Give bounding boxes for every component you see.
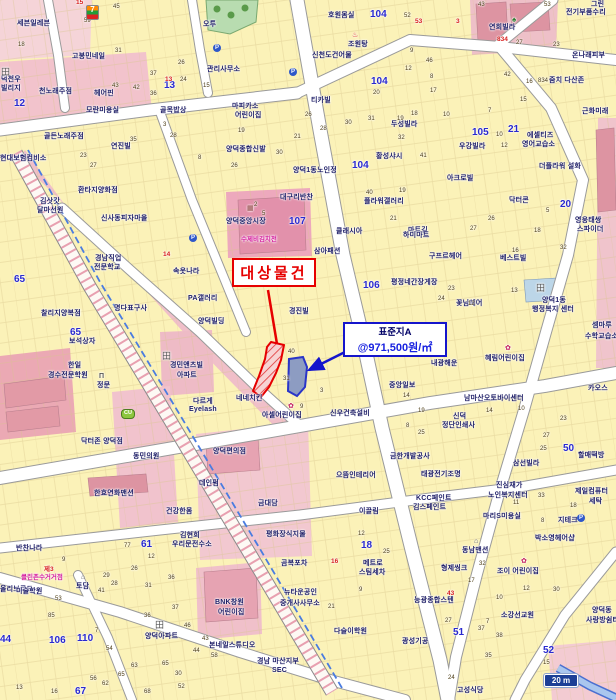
map-label: 속옷나라: [173, 268, 200, 275]
parcel-number: 30: [175, 671, 182, 677]
house-icon: ⌂: [474, 538, 478, 545]
map-label: 중앙일보: [389, 382, 416, 389]
map-label: 우강빌라: [459, 143, 486, 150]
street-name-label: 수제비김치전: [241, 237, 277, 244]
parcel-number: 24: [180, 77, 187, 83]
map-label: 네네치킨: [236, 395, 263, 402]
parcel-number: 30: [276, 150, 283, 156]
parcel-number: 5: [262, 211, 265, 217]
map-label: 정문: [97, 382, 110, 389]
map-label: 진심재가: [496, 482, 523, 489]
parcel-number: 37: [478, 626, 485, 632]
parcel-number: 46: [426, 58, 433, 64]
map-label: 경민앤츠빌: [170, 362, 203, 369]
map-label: 오투: [203, 21, 216, 28]
parcel-number: 36: [150, 91, 157, 97]
map-label: 호원몸실: [328, 12, 355, 19]
map-label: 정단인쇄사: [442, 422, 475, 429]
parcel-number: 38: [496, 633, 503, 639]
kindergarten-icon: ✿: [288, 403, 294, 410]
map-label: 삼아패션: [314, 248, 341, 255]
standard-lot-title: 표준지A: [378, 324, 411, 338]
parcel-number: 37: [172, 605, 179, 611]
map-label: 태광전기조명: [421, 471, 461, 478]
street-name-label: 클린존수거거점: [21, 575, 63, 582]
block-number: 105: [472, 128, 489, 138]
map-label: 내광해운: [431, 360, 458, 367]
parcel-number: 12: [405, 66, 412, 72]
parcel-number: 3: [320, 388, 323, 394]
block-number: 106: [49, 636, 66, 646]
map-label: 카오스: [588, 385, 608, 392]
parcel-number: 12: [523, 586, 530, 592]
parcel-number: 30: [345, 120, 352, 126]
parcel-number: 42: [133, 85, 140, 91]
tree-icon: ♠: [512, 16, 516, 24]
map-label: 건강한몸: [166, 508, 193, 515]
block-number: 107: [289, 217, 306, 227]
map-label: 관리사무소: [207, 66, 240, 73]
parcel-number: 3: [163, 122, 166, 128]
parcel-number: 27: [445, 618, 452, 624]
map-label: 현대보험컴비소: [0, 155, 46, 162]
parcel-number: 27: [90, 163, 97, 169]
parcel-number: 42: [504, 72, 511, 78]
parcel-number: 20: [373, 90, 380, 96]
red-parcel-number: 834: [497, 37, 508, 44]
parcel-number: 31: [283, 376, 290, 382]
map-label: 황성샤시: [376, 153, 403, 160]
parcel-number: 28: [170, 133, 177, 139]
map-label: 경남직업: [95, 255, 122, 262]
parcel-number: 52: [404, 13, 411, 19]
map-label: 양덕빌딩: [198, 318, 225, 325]
parcel-number: 25: [383, 549, 390, 555]
parcel-number: 36: [144, 613, 151, 619]
map-label: 달마선원: [37, 207, 64, 214]
map-label: 플라워갤러리: [364, 198, 404, 205]
map-label: 마피카소: [232, 103, 259, 110]
parcel-number: 8: [198, 155, 201, 161]
parcel-number: 44: [193, 648, 200, 654]
gate-icon: Π: [99, 373, 104, 380]
map-label: 골든노래주점: [44, 133, 84, 140]
block-number: 51: [453, 628, 464, 638]
parcel-number: 10: [496, 595, 503, 601]
map-label: 경수전문학원: [48, 372, 88, 379]
map-label: 행정복지 센터: [532, 306, 574, 313]
map-label: 세븐일레븐: [17, 20, 50, 27]
map-label: 근화미래: [582, 108, 609, 115]
map-label: 소강선교원: [501, 612, 534, 619]
map-label: 전문학교: [94, 264, 121, 271]
parcel-number: 14: [486, 408, 493, 414]
map-viewport: 세븐일레븐오투고봉민네일관리사무소마피카소어린이집천노래주점헤어핀덕천우빌리지모…: [0, 0, 616, 700]
map-label: 제일컴퓨터: [575, 488, 608, 495]
map-label: 보석상자: [69, 338, 96, 345]
map-label: 그린: [591, 1, 604, 8]
market-icon: ▦: [247, 205, 254, 212]
block-number: 67: [75, 687, 86, 697]
parcel-number: 9: [62, 557, 65, 563]
bath-icon: ♨: [352, 32, 358, 39]
block-number: 65: [14, 275, 25, 285]
parking-icon: P: [213, 44, 221, 52]
parcel-number: 46: [184, 623, 191, 629]
block-number: 52: [543, 646, 554, 656]
map-label: 마리S미용실: [483, 513, 521, 520]
map-label: 지테크: [558, 517, 578, 524]
map-label: KCC페인트: [416, 495, 452, 502]
parcel-number: 85: [48, 613, 55, 619]
map-label: 베스트빌: [500, 255, 527, 262]
map-label: 양덕1동노인정: [293, 167, 337, 174]
map-label: 빌리지: [1, 85, 21, 92]
parcel-number: 834: [538, 78, 548, 84]
apartment-icon: 田: [162, 352, 171, 361]
map-label: 양덕1동: [542, 297, 566, 304]
parcel-number: 41: [98, 588, 105, 594]
map-label: 어린이집: [235, 112, 262, 119]
map-label: 아크로빌: [447, 175, 474, 182]
map-label: 신천도건어물: [312, 52, 352, 59]
map-label: 연진빌: [111, 143, 131, 150]
parcel-number: 9: [410, 48, 413, 54]
parcel-number: 41: [420, 153, 427, 159]
parcel-number: 15: [203, 83, 210, 89]
parcel-number: 53: [55, 596, 62, 602]
map-label: 대구리반찬: [280, 194, 313, 201]
parcel-number: 56: [90, 676, 97, 682]
map-labels-layer: 세븐일레븐오투고봉민네일관리사무소마피카소어린이집천노래주점헤어핀덕천우빌리지모…: [0, 0, 616, 700]
map-label: 신우건축설비: [330, 410, 370, 417]
target-property-callout: 대상물건: [232, 258, 316, 287]
parcel-number: 14: [403, 393, 410, 399]
parcel-number: 27: [516, 40, 523, 46]
parcel-number: 9: [359, 587, 362, 593]
parcel-number: 65: [162, 661, 169, 667]
map-label: 줌치 다산존: [549, 77, 584, 84]
map-label: 삼선빌라: [513, 460, 540, 467]
map-label: 아셀어린이집: [262, 412, 302, 419]
map-label: 남마산오토바이센터: [464, 395, 524, 402]
parcel-number: 10: [496, 132, 503, 138]
parcel-number: 77: [124, 543, 131, 549]
map-label: 에셀티즈: [527, 132, 554, 139]
map-label: BNK창원: [215, 599, 244, 606]
map-label: SEC: [272, 667, 287, 674]
map-label: 스파이더: [577, 226, 604, 233]
parcel-number: 2: [254, 202, 257, 208]
map-label: 평정네간장게장: [391, 279, 437, 286]
map-label: 다르게: [193, 398, 213, 405]
block-number: 21: [508, 125, 519, 135]
standard-lot-callout: 표준지A @971,500원/㎡: [343, 322, 447, 357]
cu-store-icon: CU: [121, 409, 135, 419]
parcel-number: 26: [305, 112, 312, 118]
map-label: 모란미용실: [86, 107, 119, 114]
map-label: PA갤러리: [188, 295, 218, 302]
block-number: 110: [77, 634, 93, 644]
map-label: 골목밥상: [160, 107, 187, 114]
map-label: 더플라워 설화: [539, 163, 581, 170]
parcel-number: 32: [479, 561, 486, 567]
map-label: 할매떡방: [578, 452, 605, 459]
map-label: 영어교습소: [522, 141, 555, 148]
map-label: 김스페인트: [413, 504, 446, 511]
map-label: 고봉민네일: [72, 53, 105, 60]
map-label: 메트로: [363, 560, 383, 567]
map-label: 한효연화맨션: [94, 490, 134, 497]
house-icon: ⌂: [81, 574, 85, 581]
map-label: 양덕종합신발: [226, 146, 266, 153]
parking-icon: P: [577, 514, 585, 522]
map-label: 명다표구사: [114, 305, 147, 312]
parcel-number: 27: [470, 226, 477, 232]
block-number: 65: [70, 328, 81, 338]
parcel-number: 15: [543, 660, 550, 666]
parcel-number: 8: [430, 74, 433, 80]
kindergarten-icon: ✿: [505, 345, 511, 352]
map-label: 동남맨션: [462, 547, 489, 554]
parcel-number: 37: [150, 71, 157, 77]
map-label: 세탁: [589, 498, 602, 505]
map-label: 뉴타운공인: [284, 589, 317, 596]
parcel-number: 53: [544, 2, 551, 8]
red-parcel-number: 13: [165, 77, 172, 84]
block-number: 104: [370, 10, 387, 20]
map-label: 토담: [76, 583, 89, 590]
map-label: 조이 어린이집: [497, 568, 539, 575]
map-label: 평화장식지물: [266, 531, 306, 538]
map-label: 경진빌: [289, 308, 309, 315]
parcel-number: 25: [540, 446, 547, 452]
map-label: 우리문전수소: [172, 541, 212, 548]
parking-icon: P: [189, 234, 197, 242]
parcel-number: 35: [130, 137, 137, 143]
red-parcel-number: 43: [447, 591, 454, 598]
parcel-number: 12: [501, 143, 508, 149]
parcel-number: 18: [534, 228, 541, 234]
parcel-number: 8: [541, 518, 544, 524]
red-parcel-number: 14: [163, 252, 170, 259]
map-label: 연희빌라: [489, 24, 516, 31]
map-label: 이끌림: [359, 508, 379, 515]
map-label: 고성식당: [457, 687, 484, 694]
parcel-number: 65: [118, 672, 125, 678]
parcel-number: 10: [443, 112, 450, 118]
parcel-number: 31: [368, 116, 375, 122]
map-scale-label: 20 m: [552, 676, 570, 685]
map-label: 경남 마산지부: [257, 658, 299, 665]
parcel-number: 29: [103, 573, 110, 579]
map-label: Eyelash: [189, 406, 217, 413]
parcel-number: 16: [526, 79, 533, 85]
map-label: 혜림어린이집: [485, 355, 525, 362]
parcel-number: 18: [411, 111, 418, 117]
apartment-icon: 田: [536, 284, 545, 293]
parcel-number: 26: [131, 566, 138, 572]
parcel-number: 24: [448, 675, 455, 681]
map-label: 어린이집: [218, 609, 245, 616]
map-label: 하미마트: [403, 232, 430, 239]
parcel-number: 19: [238, 128, 245, 134]
red-parcel-number: 제3: [44, 567, 54, 574]
parcel-number: 12: [358, 531, 365, 537]
parcel-number: 32: [560, 245, 567, 251]
map-label: 양덕아파트: [145, 633, 178, 640]
parcel-number: 7: [488, 108, 491, 114]
map-label: 반찬나라: [16, 545, 43, 552]
block-number: 44: [0, 635, 11, 645]
parcel-number: 25: [418, 430, 425, 436]
map-label: 두성빌라: [391, 121, 418, 128]
parcel-number: 21: [328, 604, 335, 610]
map-label: 클래시아: [336, 228, 363, 235]
parking-icon: P: [289, 68, 297, 76]
parcel-number: 26: [488, 216, 495, 222]
map-label: 닥터존 양덕점: [81, 438, 123, 445]
parcel-number: 68: [144, 689, 151, 695]
seven-eleven-icon: 7: [86, 5, 99, 20]
parcel-number: 23: [553, 42, 560, 48]
map-label: 능광종합스텐: [414, 597, 454, 604]
parcel-number: 17: [468, 578, 475, 584]
block-number: 104: [371, 77, 388, 87]
map-label: 환타지양화점: [78, 187, 118, 194]
map-label: 금대담: [258, 500, 278, 507]
map-label: 스팀세차: [359, 569, 386, 576]
map-label: 광성기공: [402, 638, 429, 645]
parcel-number: 54: [106, 646, 113, 652]
block-number: 20: [560, 200, 571, 210]
parcel-number: 18: [18, 42, 25, 48]
parcel-number: 24: [438, 296, 445, 302]
block-number: 106: [363, 281, 380, 291]
parcel-number: 19: [399, 188, 406, 194]
red-parcel-number: 3: [456, 19, 460, 26]
parcel-number: 9: [300, 404, 303, 410]
parcel-number: 23: [448, 286, 455, 292]
parcel-number: 31: [145, 583, 152, 589]
map-label: 티카빌: [311, 97, 331, 104]
map-label: 구프르헤어: [429, 253, 462, 260]
map-label: 찰리지양복점: [41, 310, 81, 317]
map-label: 동민의원: [133, 453, 160, 460]
map-label: 곰복포차: [281, 560, 308, 567]
parcel-number: 31: [115, 48, 122, 54]
map-label: 양덕동: [592, 607, 612, 614]
block-number: 50: [563, 444, 574, 454]
map-label: 전기부품수리: [566, 9, 606, 16]
map-label: 양덕중앙시장: [226, 218, 266, 225]
parcel-number: 8: [406, 423, 409, 429]
parcel-number: 10: [518, 406, 525, 412]
parcel-number: 32: [398, 135, 405, 141]
parcel-number: 40: [366, 190, 373, 196]
map-label: 형제씽크: [441, 565, 468, 572]
map-scale-badge: 20 m: [544, 674, 578, 687]
apartment-icon: 田: [155, 621, 164, 630]
map-label: 온나래피부: [572, 52, 605, 59]
parcel-number: 35: [485, 653, 492, 659]
parcel-number: 33: [538, 493, 545, 499]
parcel-number: 58: [211, 653, 218, 659]
parcel-number: 16: [51, 689, 58, 695]
target-property-label: 대상물건: [240, 262, 307, 283]
parcel-number: 43: [202, 636, 209, 642]
map-label: 사랑방쉼터: [586, 617, 616, 624]
parcel-number: 26: [178, 60, 185, 66]
parcel-number: 23: [560, 416, 567, 422]
parcel-number: 43: [478, 2, 485, 8]
parcel-number: 62: [102, 681, 109, 687]
parcel-number: 27: [543, 433, 550, 439]
map-label: 노인복지센터: [488, 492, 528, 499]
kindergarten-icon: ✿: [521, 558, 527, 565]
map-label: 박소영헤어샵: [535, 535, 575, 542]
parcel-number: 11: [513, 500, 519, 506]
block-number: 18: [361, 541, 372, 551]
standard-lot-price: @971,500원/㎡: [358, 339, 433, 355]
parcel-number: 13: [16, 685, 23, 691]
map-label: 본네일스튜디오: [209, 642, 255, 649]
parcel-number: 13: [511, 288, 518, 294]
map-label: 신사동피자마을: [101, 215, 147, 222]
parcel-number: 28: [111, 581, 118, 587]
map-label: 한일: [68, 362, 81, 369]
parcel-number: 36: [168, 575, 175, 581]
parcel-number: 23: [80, 153, 87, 159]
map-label: 으뜸인테리어: [336, 472, 376, 479]
map-label: 수학교습소: [585, 333, 616, 340]
parcel-number: 30: [553, 587, 560, 593]
parcel-number: 19: [397, 116, 404, 122]
parcel-number: 5: [546, 208, 549, 214]
map-label: 다슬이학원: [334, 628, 367, 635]
block-number: 12: [14, 99, 25, 109]
block-number: 104: [352, 161, 369, 171]
parcel-number: 18: [570, 503, 577, 509]
parcel-number: 19: [418, 408, 425, 414]
map-label: 덕천우: [1, 76, 21, 83]
red-parcel-number: 53: [415, 19, 422, 26]
map-label: 김현희: [180, 532, 200, 539]
map-label: 헤어핀: [94, 90, 114, 97]
parcel-number: 63: [131, 663, 138, 669]
map-label: 양덕편의점: [213, 448, 246, 455]
map-label: 미술학원: [16, 588, 43, 595]
parcel-number: 7: [95, 628, 98, 634]
map-label: 영웅태쌍: [575, 217, 602, 224]
map-label: 신덕: [453, 413, 466, 420]
parcel-number: 17: [430, 88, 437, 94]
parcel-number: 52: [178, 684, 185, 690]
parcel-number: 26: [231, 163, 238, 169]
apartment-icon: 田: [1, 68, 10, 77]
map-label: 김삿갓: [40, 198, 60, 205]
parcel-number: 7: [486, 619, 489, 625]
parcel-number: 28: [320, 126, 327, 132]
red-parcel-number: 16: [331, 559, 338, 566]
map-label: 데인펌: [199, 480, 219, 487]
parcel-number: 40: [288, 349, 295, 355]
red-parcel-number: 15: [76, 0, 83, 7]
map-label: 금한개발공사: [390, 453, 430, 460]
parcel-number: 21: [390, 216, 397, 222]
parcel-number: 12: [148, 554, 155, 560]
map-label: 아파트: [177, 372, 197, 379]
